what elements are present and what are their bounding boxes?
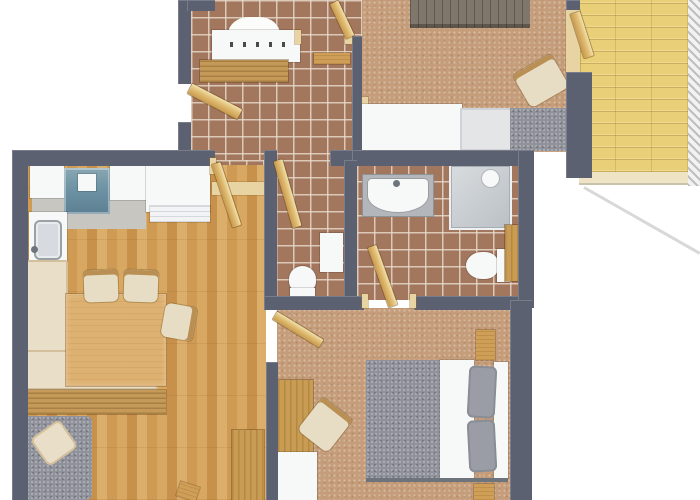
balcony-railing (688, 0, 700, 186)
wc-wall-cabinet (320, 233, 343, 272)
balcony-deck (579, 0, 690, 172)
wall-bedroom1-right (510, 300, 532, 500)
hall-bench (200, 60, 288, 82)
dining-chair-2 (123, 269, 158, 302)
sink-tap (393, 180, 400, 187)
kitchen-counter-mid (110, 166, 146, 200)
wall-bathroom-top (352, 150, 518, 166)
wall-bath-bottom-right (414, 296, 518, 310)
bed-pillow-top (467, 365, 498, 418)
bench-wood-frame (28, 390, 166, 414)
bath-toilet-bowl (466, 252, 498, 279)
wall-hall-left-upper (178, 0, 191, 84)
bedroom2-dresser (410, 0, 530, 28)
balcony-shadow-edge (583, 186, 700, 255)
sink-faucet (31, 246, 38, 253)
nightstand (476, 330, 495, 360)
kitchen-cabinet-front (150, 206, 210, 222)
bed-pillow-bottom (467, 419, 498, 472)
dining-chair-3 (160, 302, 197, 341)
wall-bath-bottom-left (264, 296, 364, 310)
kitchen-counter-left (30, 166, 64, 198)
wall-top-stub (187, 0, 215, 11)
wall-kitchen-top (12, 150, 215, 166)
shower (449, 164, 512, 230)
coat-hooks (230, 42, 290, 47)
bedroom2-bed-pillow (460, 108, 512, 151)
balcony-edge (579, 172, 688, 185)
shower-head (482, 170, 499, 187)
cooktop-pot (78, 174, 96, 191)
hall-wall-shelf (314, 53, 350, 64)
bed-duvet (366, 360, 440, 480)
wall-bathroom-right (518, 150, 534, 308)
wall-bedroom1-left (266, 362, 278, 500)
kitchen-sink (34, 220, 62, 260)
bed-footboard (366, 478, 508, 482)
living-cabinet (232, 430, 264, 500)
door-frame-bath-b (410, 294, 416, 308)
wall-hall-bedroom2 (352, 36, 362, 152)
wall-balcony-stub (566, 0, 580, 10)
bedroom2-bed-duvet (362, 104, 462, 151)
wall-wc-left (264, 150, 277, 310)
wall-left-outer (12, 150, 28, 500)
door-frame-bedroom2-a (295, 30, 301, 44)
wall-wc-bath-divider (344, 160, 357, 310)
bedroom2-bed-blanket (510, 108, 572, 151)
dining-table (66, 294, 166, 386)
floor-plan (0, 0, 700, 500)
wall-balcony-corner (566, 72, 592, 178)
dining-chair-1 (83, 269, 118, 302)
door-frame-bath-a (362, 294, 368, 308)
bedroom1-side-table (474, 484, 494, 500)
